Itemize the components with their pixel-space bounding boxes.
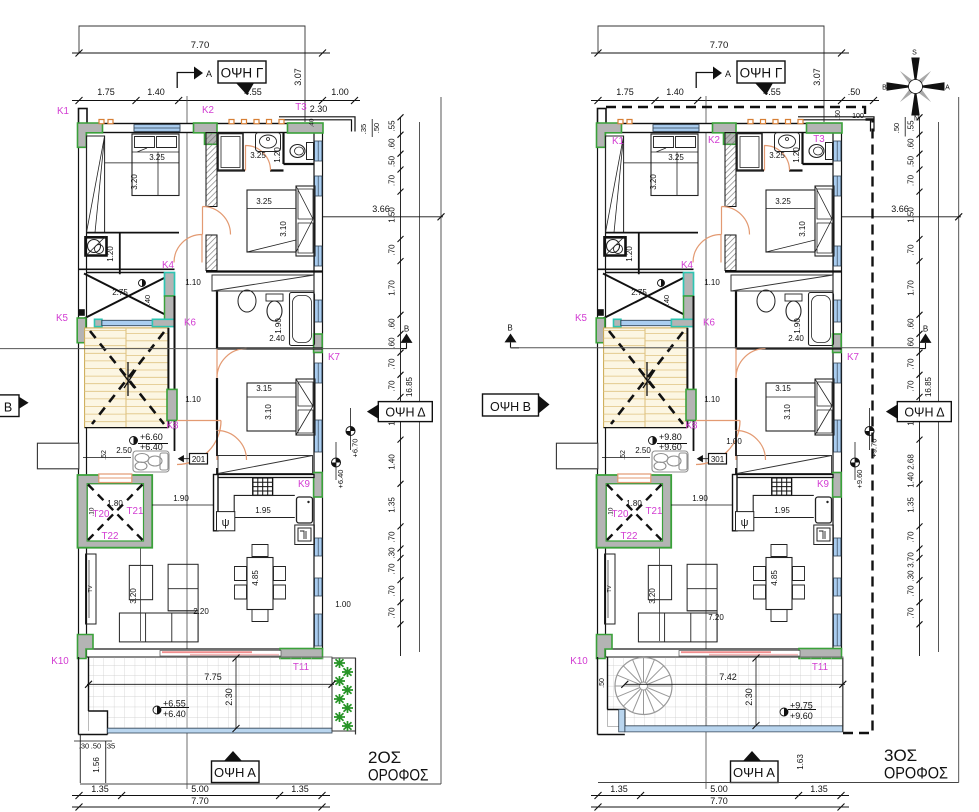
svg-text:1.56: 1.56 — [92, 757, 101, 773]
svg-text:+9.75: +9.75 — [790, 701, 813, 711]
svg-text:+6.40: +6.40 — [163, 709, 186, 719]
svg-text:2ΟΣ: 2ΟΣ — [368, 748, 401, 767]
svg-text:.50: .50 — [835, 110, 842, 120]
svg-text:1.70: 1.70 — [388, 280, 397, 296]
svg-text:K1: K1 — [612, 136, 624, 147]
svg-text:K1: K1 — [57, 106, 69, 117]
svg-text:100: 100 — [852, 113, 864, 120]
svg-text:+9.60: +9.60 — [790, 711, 813, 721]
svg-text:1.50: 1.50 — [388, 207, 397, 223]
svg-text:T3: T3 — [813, 134, 825, 145]
svg-text:.70: .70 — [388, 380, 397, 392]
svg-text:K2: K2 — [708, 135, 720, 146]
svg-text:.35: .35 — [105, 742, 115, 751]
svg-text:B: B — [4, 401, 12, 415]
svg-text:.70: .70 — [388, 174, 397, 186]
svg-text:.30: .30 — [907, 570, 916, 582]
svg-text:K2: K2 — [202, 105, 214, 116]
svg-text:+6.60: +6.60 — [140, 432, 163, 442]
svg-text:.30: .30 — [79, 742, 89, 751]
svg-text:+9.80: +9.80 — [659, 432, 682, 442]
svg-text:.70: .70 — [907, 585, 916, 597]
svg-text:1.40: 1.40 — [907, 472, 916, 488]
svg-text:2.30: 2.30 — [744, 688, 754, 706]
svg-text:+9.60: +9.60 — [659, 442, 682, 452]
svg-text:.50: .50 — [372, 123, 381, 133]
svg-text:+6.40: +6.40 — [140, 442, 163, 452]
svg-text:.60: .60 — [907, 318, 916, 330]
svg-text:+6.55: +6.55 — [163, 699, 186, 709]
svg-text:2.30: 2.30 — [310, 104, 328, 114]
svg-text:A: A — [945, 85, 950, 92]
svg-text:1.00: 1.00 — [726, 437, 742, 446]
svg-text:1.35: 1.35 — [907, 497, 916, 513]
svg-text:.70: .70 — [388, 585, 397, 597]
svg-text:.50: .50 — [848, 87, 861, 97]
svg-text:B: B — [404, 325, 409, 334]
svg-text:B: B — [923, 325, 928, 334]
svg-text:ΟΨΗ Δ: ΟΨΗ Δ — [385, 406, 425, 420]
svg-text:B: B — [507, 324, 512, 333]
svg-text:.70: .70 — [388, 607, 397, 619]
svg-text:.70: .70 — [907, 531, 916, 543]
svg-text:ΟΡΟΦΟΣ: ΟΡΟΦΟΣ — [368, 766, 429, 785]
svg-text:1.70: 1.70 — [907, 280, 916, 296]
svg-text:.70: .70 — [907, 607, 916, 619]
svg-text:2.68: 2.68 — [907, 454, 916, 470]
svg-text:ΟΡΟΦΟΣ: ΟΡΟΦΟΣ — [884, 764, 948, 783]
svg-text:.70: .70 — [388, 244, 397, 256]
svg-text:.55: .55 — [388, 120, 397, 132]
svg-text:3ΟΣ: 3ΟΣ — [884, 746, 917, 765]
svg-text:.70: .70 — [388, 531, 397, 543]
svg-text:.30: .30 — [388, 547, 397, 559]
svg-text:ΟΨΗ Β: ΟΨΗ Β — [490, 400, 531, 414]
svg-text:S: S — [912, 50, 917, 57]
svg-text:T3: T3 — [295, 102, 307, 113]
svg-text:7.20: 7.20 — [708, 613, 724, 622]
svg-text:+6.70: +6.70 — [351, 439, 360, 458]
svg-text:.70: .70 — [907, 174, 916, 186]
svg-text:1.00: 1.00 — [335, 600, 351, 609]
svg-text:.50: .50 — [388, 155, 397, 167]
svg-text:N: N — [914, 116, 919, 123]
svg-text:16.85: 16.85 — [405, 376, 414, 397]
svg-text:.50: .50 — [91, 742, 101, 751]
svg-text:.70: .70 — [907, 380, 916, 392]
svg-text:16.85: 16.85 — [924, 376, 933, 397]
svg-text:.50: .50 — [599, 678, 606, 688]
svg-text:1.40: 1.40 — [388, 454, 397, 470]
svg-text:.50: .50 — [907, 155, 916, 167]
svg-text:2.30: 2.30 — [224, 688, 234, 706]
svg-text:3.70: 3.70 — [907, 552, 916, 568]
svg-text:.60: .60 — [388, 138, 397, 150]
svg-text:1.00: 1.00 — [331, 87, 349, 97]
svg-text:301: 301 — [711, 455, 725, 464]
svg-text:+6.40: +6.40 — [336, 470, 345, 489]
svg-text:ΟΨΗ Δ: ΟΨΗ Δ — [904, 406, 944, 420]
svg-text:.60: .60 — [907, 138, 916, 150]
svg-text:7.42: 7.42 — [719, 672, 737, 682]
svg-text:2.20: 2.20 — [193, 607, 209, 616]
svg-text:+9.60: +9.60 — [855, 470, 864, 489]
svg-text:.70: .70 — [388, 358, 397, 370]
svg-text:7.75: 7.75 — [204, 672, 222, 682]
svg-text:1.35: 1.35 — [388, 497, 397, 513]
svg-text:+9.70: +9.70 — [870, 439, 879, 458]
svg-text:.60: .60 — [388, 318, 397, 330]
svg-text:.60: .60 — [907, 337, 916, 349]
svg-text:B: B — [882, 85, 887, 92]
svg-text:1.50: 1.50 — [907, 207, 916, 223]
svg-text:1.63: 1.63 — [796, 754, 805, 770]
svg-text:.70: .70 — [907, 244, 916, 256]
svg-text:.70: .70 — [907, 358, 916, 370]
svg-text:.40: .40 — [309, 118, 316, 127]
svg-text:.60: .60 — [388, 337, 397, 349]
svg-text:201: 201 — [192, 455, 206, 464]
svg-text:.50: .50 — [892, 123, 901, 133]
svg-text:.35: .35 — [359, 124, 368, 134]
svg-text:.70: .70 — [388, 563, 397, 575]
